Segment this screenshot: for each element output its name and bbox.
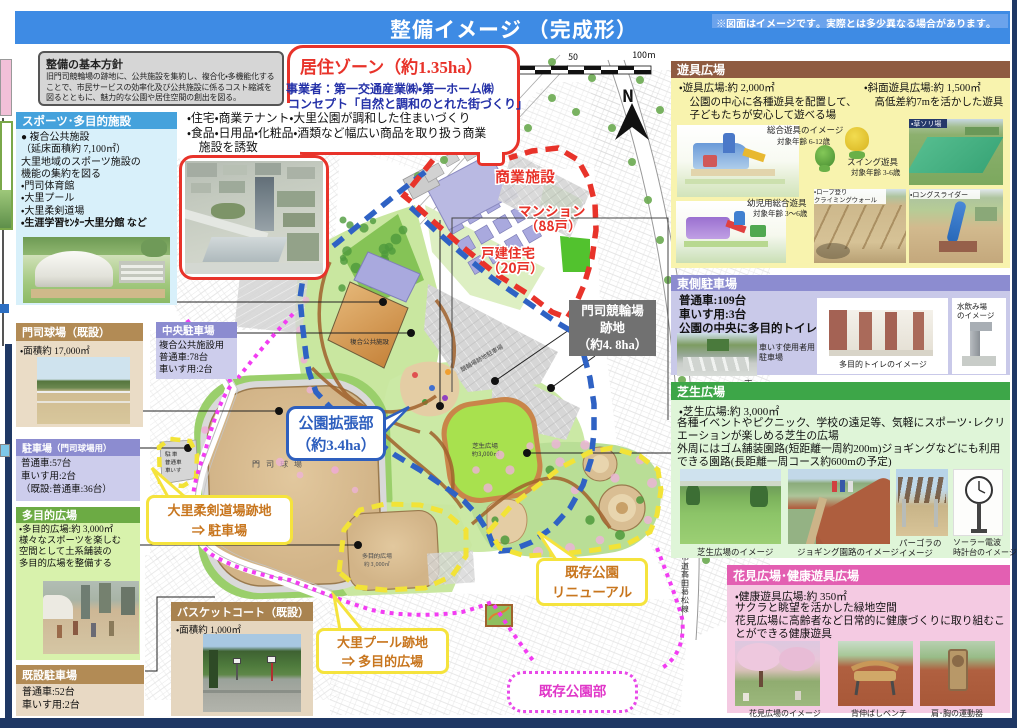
svg-text:普通車: 普通車 xyxy=(165,458,182,466)
svg-text:約3,000㎡: 約3,000㎡ xyxy=(471,449,499,458)
svg-text:線: 線 xyxy=(680,604,689,615)
svg-text:複合公共施設: 複合公共施設 xyxy=(350,336,390,346)
svg-text:N: N xyxy=(622,83,634,107)
svg-text:50: 50 xyxy=(568,50,578,63)
svg-text:多目的広場: 多目的広場 xyxy=(362,551,392,560)
svg-text:駐 車: 駐 車 xyxy=(164,450,178,458)
svg-text:車いす: 車いす xyxy=(165,466,182,474)
svg-text:（88戸）: （88戸） xyxy=(525,215,581,235)
svg-text:（20戸）: （20戸） xyxy=(487,257,543,277)
svg-text:商業施設: 商業施設 xyxy=(495,166,555,187)
svg-text:約 3,000㎡: 約 3,000㎡ xyxy=(364,560,390,568)
svg-text:100m: 100m xyxy=(632,48,655,61)
